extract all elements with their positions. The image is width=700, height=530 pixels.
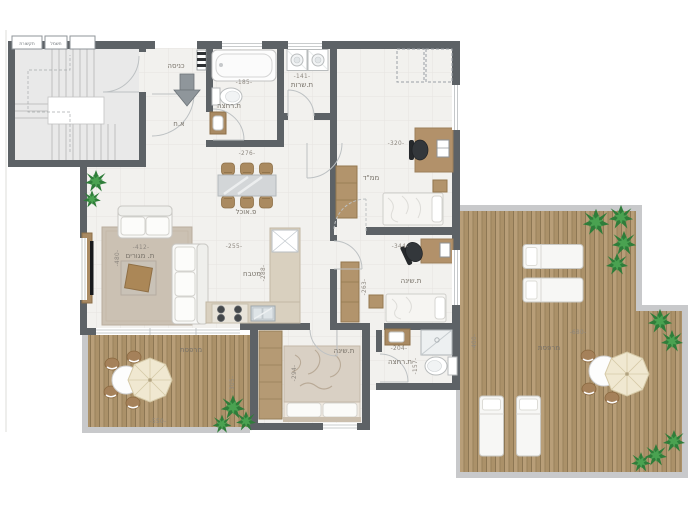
bedroom-back-dim-d: -294- — [292, 365, 298, 382]
entry-note-label: א.ח — [173, 120, 185, 128]
living-dim-w: -412- — [133, 245, 150, 251]
shaft-hatch — [197, 50, 206, 70]
dining-dim: -276- — [239, 151, 256, 157]
kitchen-dim-w: -255- — [226, 244, 243, 250]
bedroom-mid-desk — [421, 239, 453, 263]
sun-lounger — [523, 245, 583, 269]
umbrella — [605, 352, 649, 396]
mamad-bed — [383, 193, 443, 225]
terrace-right-dim-w: -680- — [570, 330, 587, 336]
window-mamad — [452, 85, 460, 130]
bathtub — [212, 50, 276, 81]
double-bed — [283, 346, 361, 422]
terrace-right-label: מרפסת — [538, 344, 560, 352]
terrace-right-dim-d: -400- — [472, 334, 478, 351]
sun-lounger — [523, 278, 583, 302]
pillow — [435, 297, 445, 319]
laptop — [440, 243, 450, 257]
toilet-back — [425, 357, 457, 375]
window-bedroom-back — [323, 423, 357, 430]
headboard — [283, 417, 361, 422]
sun-lounger — [480, 396, 504, 456]
office-chair — [409, 140, 428, 160]
bedroom-back-label: ת.שינה — [334, 347, 355, 355]
sofa-vertical — [172, 244, 208, 324]
kitchen-sink — [251, 306, 275, 321]
shower — [421, 330, 452, 355]
bedroom-mid-bed — [386, 294, 446, 322]
living-dim-d: -480- — [115, 250, 121, 267]
mamad-wardrobe — [336, 166, 357, 218]
terrace-left-dim-w: -550- — [150, 419, 167, 425]
window-living-left — [80, 238, 87, 300]
living-label: ת. מגורים — [126, 252, 155, 260]
laundry-machines — [287, 50, 328, 71]
pillow — [287, 403, 321, 417]
patio-chair — [127, 351, 141, 363]
tv-screen — [90, 241, 94, 295]
stair-landing — [48, 97, 104, 124]
umbrella — [128, 358, 172, 402]
floor-plan-canvas: תקשורת חשמל כניסה א.ח -185- ת.רחצה -141-… — [0, 0, 700, 530]
wc-label: ת.שרות — [291, 81, 313, 89]
dining-set — [218, 163, 276, 208]
patio-chair — [582, 383, 596, 395]
coffee-table — [121, 261, 156, 295]
vanity-back — [385, 329, 410, 345]
pillow — [432, 196, 442, 222]
electric-closet-label: חשמל — [50, 42, 61, 47]
bath-back-dim-d: -157- — [413, 358, 419, 375]
floor-plan-page: תקשורת חשמל כניסה א.ח -185- ת.רחצה -141-… — [0, 0, 700, 530]
bedroom-mid-label: ת.שינה — [401, 277, 422, 285]
mamad-dim: -320- — [388, 141, 405, 147]
bedroom-mid-closet — [341, 262, 359, 322]
sun-lounger — [517, 396, 541, 456]
stairwell — [8, 36, 146, 167]
bedroom-back-closet — [259, 331, 282, 419]
stove-cooktop — [212, 304, 248, 323]
laptop — [437, 140, 449, 157]
patio-chair — [105, 358, 119, 370]
entrance-label: כניסה — [167, 62, 184, 70]
patio-chair — [605, 392, 619, 404]
kitchen-label: מטבח — [243, 270, 261, 278]
wc-dim: -141- — [294, 74, 311, 80]
terrace-left-dim-d: -305- — [230, 376, 236, 393]
refrigerator — [272, 230, 298, 252]
window-bedroom-mid — [452, 250, 460, 305]
dining-label: פ.אוכל — [236, 208, 257, 216]
bath-back-dim-w: -204- — [391, 346, 408, 352]
terrace-left-label: מרפסת — [180, 346, 202, 354]
bath-back-label: ת.רחצה — [388, 358, 412, 366]
mamad-label: ממ"ד — [363, 174, 380, 182]
nightstand — [433, 180, 447, 192]
vanity-main — [210, 112, 226, 134]
patio-chair — [126, 397, 140, 409]
window-wc — [288, 41, 322, 49]
sliding-door-terrace — [96, 328, 240, 335]
bath-main-dim: -185- — [236, 80, 253, 86]
kitchen-dim-d: -288- — [261, 265, 267, 282]
pillow — [323, 403, 357, 417]
bedroom-mid-dim-w: -344- — [392, 244, 409, 250]
sofa-horizontal — [118, 206, 172, 238]
nightstand — [369, 295, 383, 308]
spare-closet-box — [70, 36, 95, 49]
window-bath-main — [222, 41, 262, 49]
bedroom-mid-dim-d: -263- — [362, 279, 368, 296]
bath-main-label: ת.רחצה — [217, 102, 241, 110]
comm-closet-label: תקשורת — [19, 42, 35, 47]
